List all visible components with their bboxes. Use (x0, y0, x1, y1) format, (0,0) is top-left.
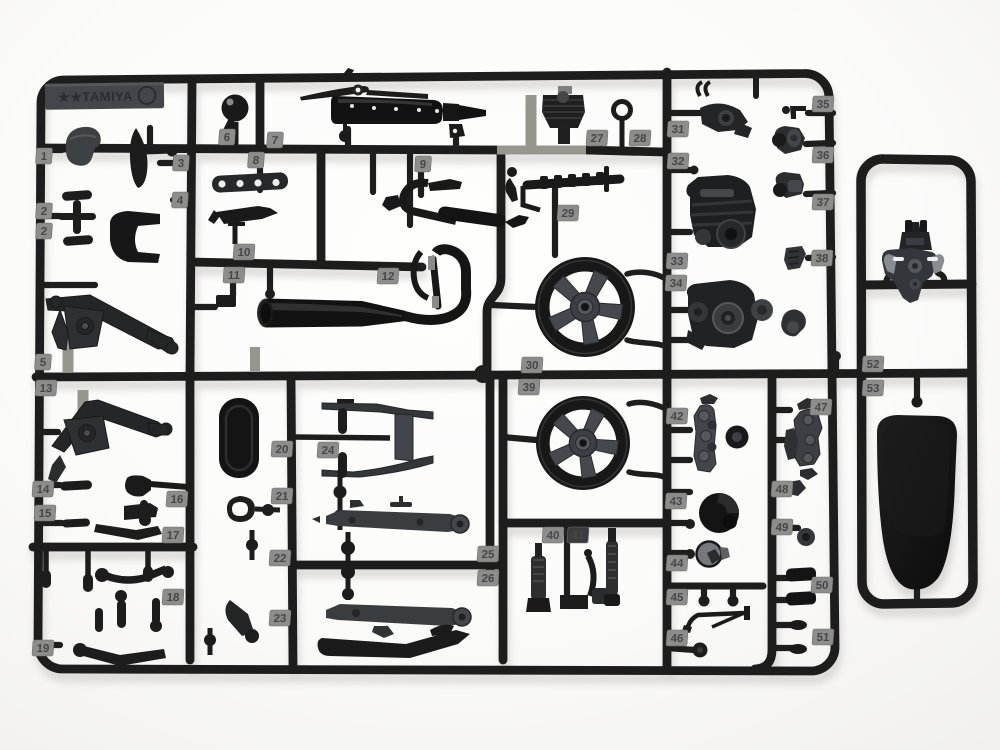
svg-text:32: 32 (671, 156, 685, 168)
svg-text:21: 21 (275, 491, 289, 503)
svg-text:50: 50 (815, 580, 829, 592)
svg-text:23: 23 (273, 613, 287, 625)
svg-text:47: 47 (814, 402, 828, 414)
svg-text:31: 31 (671, 124, 685, 136)
svg-text:43: 43 (669, 496, 683, 508)
svg-text:42: 42 (670, 411, 684, 423)
svg-text:25: 25 (481, 549, 495, 561)
svg-text:10: 10 (237, 247, 251, 259)
svg-text:27: 27 (590, 133, 604, 145)
svg-text:51: 51 (816, 632, 830, 644)
svg-text:D: D (143, 91, 151, 103)
svg-text:17: 17 (166, 530, 180, 542)
svg-text:45: 45 (670, 592, 684, 604)
svg-text:36: 36 (816, 150, 830, 162)
svg-text:29: 29 (561, 208, 575, 220)
svg-text:2: 2 (40, 206, 47, 218)
svg-text:30: 30 (525, 360, 539, 372)
svg-text:38: 38 (815, 253, 829, 265)
svg-text:34: 34 (669, 278, 683, 290)
svg-text:12: 12 (381, 271, 395, 283)
svg-text:24: 24 (321, 445, 335, 457)
svg-text:35: 35 (816, 99, 830, 111)
svg-text:41: 41 (571, 530, 585, 542)
svg-text:18: 18 (166, 592, 180, 604)
svg-text:22: 22 (273, 553, 287, 565)
svg-text:52: 52 (866, 359, 880, 371)
svg-text:44: 44 (670, 558, 684, 570)
svg-text:15: 15 (38, 508, 52, 520)
svg-text:19: 19 (36, 643, 50, 655)
svg-text:14: 14 (36, 484, 50, 496)
svg-text:★★TAMIYA: ★★TAMIYA (58, 89, 133, 105)
svg-text:26: 26 (481, 573, 495, 585)
svg-text:37: 37 (816, 197, 830, 209)
svg-text:6: 6 (223, 132, 230, 144)
svg-text:53: 53 (866, 383, 880, 395)
svg-text:39: 39 (522, 382, 536, 394)
svg-text:48: 48 (775, 484, 789, 496)
svg-text:49: 49 (775, 522, 789, 534)
svg-text:16: 16 (170, 494, 184, 506)
svg-text:9: 9 (419, 159, 426, 171)
svg-text:2: 2 (40, 226, 47, 238)
svg-text:11: 11 (227, 270, 241, 282)
svg-text:7: 7 (271, 135, 278, 147)
svg-text:13: 13 (39, 383, 53, 395)
svg-text:46: 46 (670, 633, 684, 645)
svg-text:20: 20 (275, 444, 289, 456)
svg-text:3: 3 (177, 158, 184, 170)
svg-text:40: 40 (546, 530, 560, 542)
svg-text:33: 33 (670, 256, 684, 268)
svg-text:28: 28 (633, 133, 647, 145)
